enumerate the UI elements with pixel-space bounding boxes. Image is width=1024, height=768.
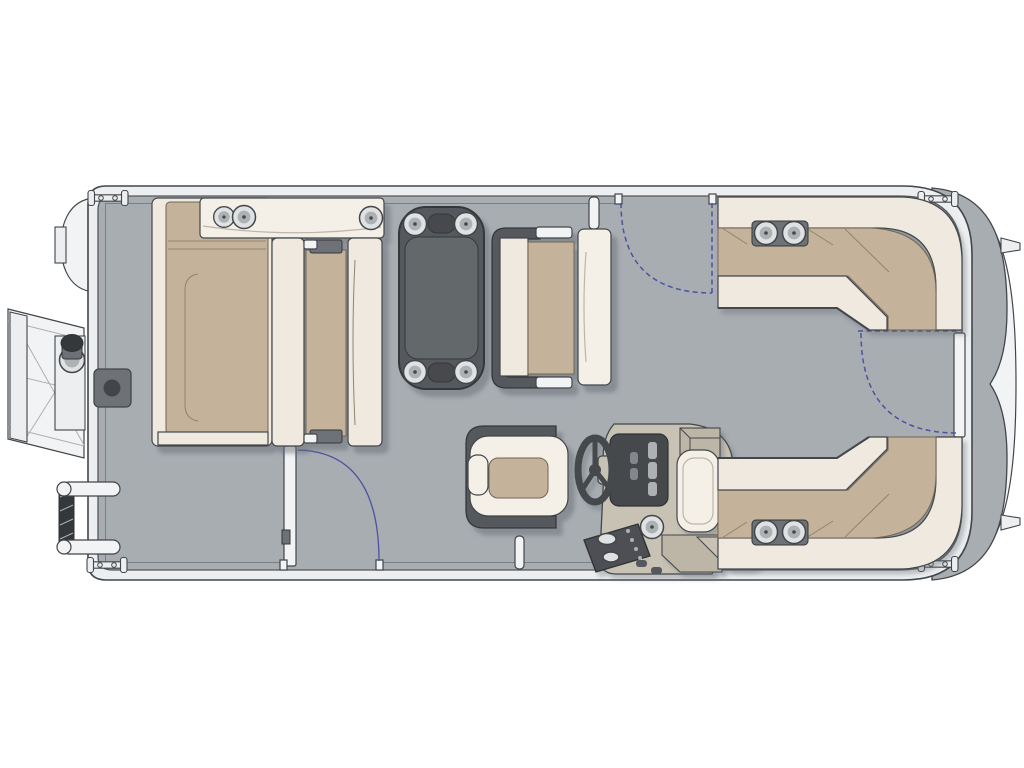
cup-holder-plate xyxy=(752,221,808,246)
cup-holder xyxy=(641,516,664,539)
tow-tab-bottom xyxy=(1001,515,1020,530)
cup-holder xyxy=(755,521,778,544)
cup-holder xyxy=(783,222,806,245)
cup-holder xyxy=(404,213,427,236)
bow-seating-group xyxy=(152,198,384,446)
cup-holder-plate xyxy=(752,520,808,545)
cup-holder xyxy=(360,207,383,230)
pedestal-table xyxy=(399,207,484,389)
bow-armrest-console xyxy=(200,198,384,238)
cup-holder xyxy=(404,361,427,384)
gate-door xyxy=(954,333,965,437)
floorplan-canvas xyxy=(0,0,1024,768)
midship-bench xyxy=(492,227,611,388)
cup-holder xyxy=(233,206,256,229)
mooring-bollard xyxy=(60,335,85,373)
table-base-mount xyxy=(94,369,131,407)
cup-holder xyxy=(783,521,806,544)
rail-post xyxy=(515,536,524,569)
pontoon-floorplan xyxy=(0,0,1024,768)
motor-pod-bracket xyxy=(55,227,66,263)
cup-holder xyxy=(755,222,778,245)
cup-holder xyxy=(455,361,478,384)
door-hinge xyxy=(282,530,290,544)
dash-panel xyxy=(610,434,668,506)
back-to-back-bench xyxy=(272,238,382,446)
bow-exterior xyxy=(8,198,94,458)
captain-chair xyxy=(466,426,568,528)
gate-door-open xyxy=(284,446,296,566)
cup-holder xyxy=(214,207,235,228)
gangway-end-plate xyxy=(10,312,27,442)
gate-stanchion xyxy=(589,197,599,229)
tow-tab-top xyxy=(1001,238,1020,253)
cup-holder xyxy=(455,213,478,236)
